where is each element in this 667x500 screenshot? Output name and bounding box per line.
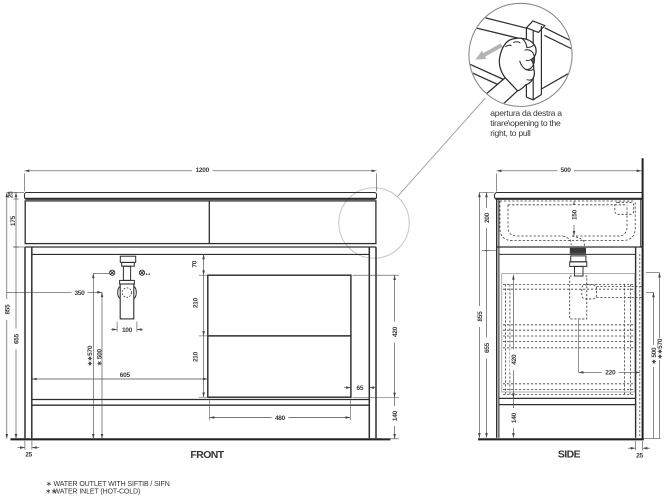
svg-text:25: 25 bbox=[25, 451, 32, 458]
svg-text:655: 655 bbox=[13, 333, 20, 344]
svg-text:25: 25 bbox=[636, 452, 643, 459]
svg-text:∗: ∗ bbox=[46, 481, 52, 488]
svg-text:220: 220 bbox=[605, 369, 616, 376]
svg-text:605: 605 bbox=[120, 372, 131, 379]
svg-text:200: 200 bbox=[484, 212, 491, 223]
svg-text:SIDE: SIDE bbox=[558, 450, 581, 461]
svg-text:WATER INLET (HOT-COLD): WATER INLET (HOT-COLD) bbox=[54, 488, 141, 495]
svg-text:655: 655 bbox=[484, 342, 491, 353]
svg-text:420: 420 bbox=[511, 354, 518, 365]
svg-text:1200: 1200 bbox=[196, 167, 210, 174]
svg-text:210: 210 bbox=[192, 351, 199, 362]
svg-text:855: 855 bbox=[4, 304, 11, 315]
svg-text:480: 480 bbox=[275, 415, 286, 422]
svg-text:855: 855 bbox=[477, 311, 484, 322]
svg-text:210: 210 bbox=[192, 297, 199, 308]
svg-text:25: 25 bbox=[8, 191, 15, 198]
svg-text:100: 100 bbox=[122, 327, 133, 334]
svg-text:500: 500 bbox=[561, 167, 572, 174]
svg-text:∗ 500: ∗ 500 bbox=[96, 348, 103, 365]
svg-text:∗∗570: ∗∗570 bbox=[87, 345, 94, 366]
svg-text:175: 175 bbox=[10, 215, 17, 226]
svg-text:apertura da destra a: apertura da destra a bbox=[490, 108, 562, 118]
svg-text:∗∗570: ∗∗570 bbox=[657, 338, 664, 359]
svg-text:140: 140 bbox=[511, 412, 518, 423]
svg-text:350: 350 bbox=[74, 290, 85, 297]
svg-text:WATER OUTLET WITH SIFTIB / SIF: WATER OUTLET WITH SIFTIB / SIFN bbox=[54, 481, 170, 488]
svg-text:65: 65 bbox=[357, 385, 364, 392]
svg-text:tirare\opening to the: tirare\opening to the bbox=[490, 118, 561, 128]
svg-text:FRONT: FRONT bbox=[190, 450, 224, 461]
svg-text:70: 70 bbox=[191, 260, 198, 267]
svg-text:420: 420 bbox=[392, 326, 399, 337]
svg-text:140: 140 bbox=[392, 410, 399, 421]
svg-text:right, to pull: right, to pull bbox=[490, 128, 531, 138]
svg-text:150: 150 bbox=[571, 209, 578, 220]
